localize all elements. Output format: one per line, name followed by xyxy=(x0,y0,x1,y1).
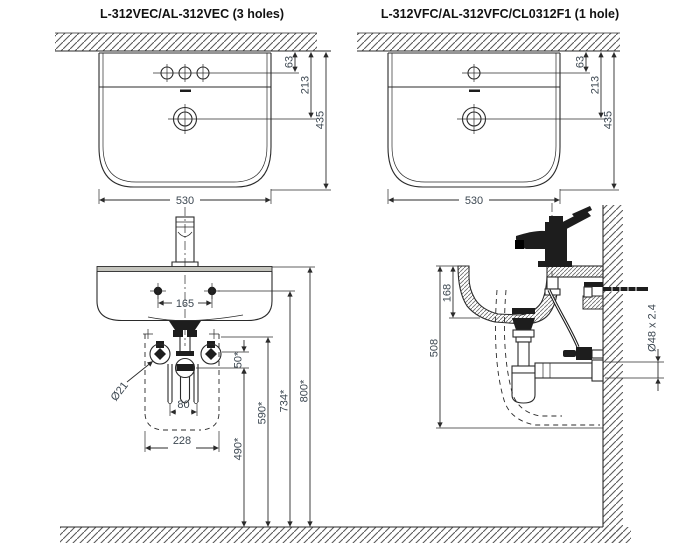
angle-valve xyxy=(563,347,603,360)
dim-drain-offset-right: 213 xyxy=(590,76,602,94)
title-left: L-312VEC/AL-312VEC (3 holes) xyxy=(100,7,284,21)
faucet-side xyxy=(515,203,592,300)
wall-hatch-top-right xyxy=(357,33,620,51)
dim-valve-diameter: Ø21 xyxy=(109,380,131,404)
dim-hole-offset-left: 63 xyxy=(284,56,296,68)
dim-800: 800* xyxy=(299,379,311,402)
dim-basin-depth: 168 xyxy=(442,284,454,302)
overflow-slot xyxy=(469,90,480,93)
basin-section xyxy=(458,266,558,324)
install-side-view: 168 508 Ø48 x 2.4 xyxy=(429,203,665,428)
dim-490: 490* xyxy=(233,437,245,460)
dim-height-right: 435 xyxy=(603,111,615,129)
dim-height-left: 435 xyxy=(315,111,327,129)
technical-drawing: L-312VEC/AL-312VEC (3 holes) L-312VFC/AL… xyxy=(0,0,685,548)
supply-valve-right xyxy=(201,341,221,364)
dim-508: 508 xyxy=(429,339,441,357)
dim-supply-spacing: 80 xyxy=(177,399,189,411)
dim-drain-offset-left: 213 xyxy=(300,76,312,94)
floor-hatch xyxy=(60,527,631,543)
dim-width-right: 530 xyxy=(465,195,483,207)
overflow-slot xyxy=(180,90,191,93)
front-view-3hole: 63 213 435 530 xyxy=(99,53,331,208)
dim-width-left: 530 xyxy=(176,195,194,207)
dim-mount-spacing: 165 xyxy=(176,298,194,310)
supply-valve-left xyxy=(150,341,170,364)
wall-hatch-side xyxy=(603,205,623,543)
title-right: L-312VFC/AL-312VFC/CL0312F1 (1 hole) xyxy=(381,7,619,21)
dim-734: 734* xyxy=(279,389,291,412)
front-view-1hole: 63 213 435 530 xyxy=(388,53,619,208)
spec-sheet: L-312VEC/AL-312VEC (3 holes) L-312VFC/AL… xyxy=(0,0,685,548)
install-front-view: 165 xyxy=(97,207,315,526)
dim-valve-gap: 50* xyxy=(233,351,245,368)
dim-590: 590* xyxy=(257,401,269,424)
dim-hole-offset-right: 63 xyxy=(575,56,587,68)
dim-pedestal-width: 228 xyxy=(173,435,191,447)
wall-hatch-top-left xyxy=(55,33,331,51)
dim-pipe-spec: Ø48 x 2.4 xyxy=(647,304,659,352)
